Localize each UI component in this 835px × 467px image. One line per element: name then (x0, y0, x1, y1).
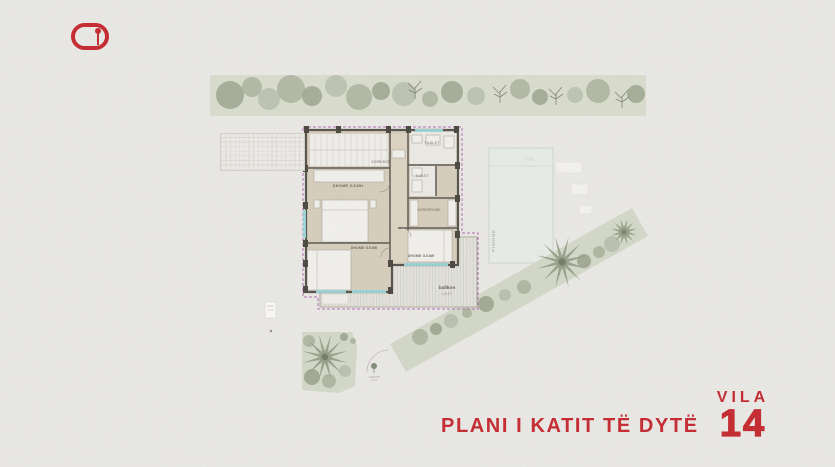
balcony-label: ballkon (439, 285, 456, 291)
slide: PISHINE ballkon ± 5.27 (0, 0, 835, 467)
balcony-elevation: ± 5.27 (442, 292, 452, 296)
room-label-bedroom-bottom: DHOME GJUMI (351, 246, 378, 250)
shrub-icon (371, 363, 377, 369)
page-title: PLANI I KATIT TË DYTË (441, 415, 699, 438)
room-label-toilet-top: TUALET (424, 141, 440, 145)
villa-number: 14 (712, 406, 774, 442)
room-label-bedroom-right: DHOME GJUMI (408, 254, 435, 258)
sunbeds (556, 162, 592, 214)
paved-terrace (220, 133, 305, 171)
room-label-toilet-mid: TUALET (415, 174, 428, 178)
villa-badge: VILA 14 (712, 390, 774, 442)
top-vegetation-band (210, 75, 646, 116)
room-label-corridor: KORRIDOR (372, 160, 391, 164)
pool: PISHINE (489, 148, 553, 263)
site-plan-drawing: PISHINE ballkon ± 5.27 (0, 0, 835, 467)
room-label-wardrobe: GARDEROBE (417, 208, 441, 212)
room-label-bedroom-left: DHOME GJUMI (333, 184, 364, 188)
pool-label: PISHINE (491, 229, 496, 252)
brand-pill-key-icon (71, 23, 109, 50)
